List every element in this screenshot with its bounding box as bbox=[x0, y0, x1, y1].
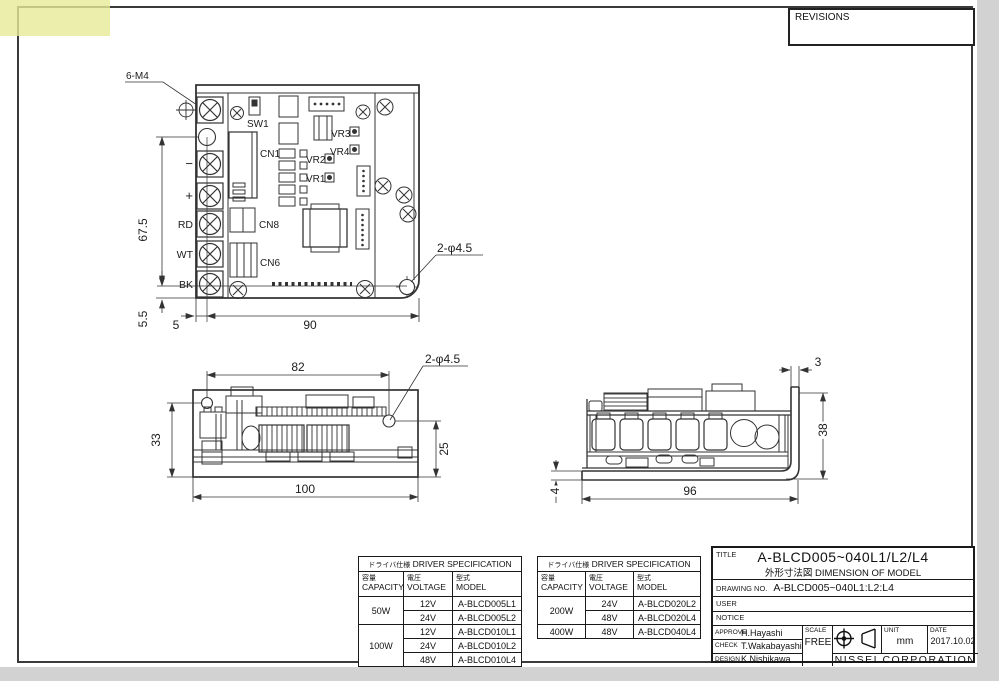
spec-left-header-capacity: 容量CAPACITY bbox=[359, 572, 404, 597]
unit-value: mm bbox=[882, 636, 928, 647]
approve-label: APPROVE bbox=[713, 629, 741, 636]
company-name: NISSEI CORPORATION bbox=[832, 653, 978, 666]
approve-row: APPROVE H.Hayashi bbox=[713, 626, 802, 640]
drawing-no-value: A-BLCD005~040L1:L2:L4 bbox=[773, 582, 894, 594]
check-label: CHECK bbox=[713, 642, 741, 649]
signature-area: APPROVE H.Hayashi CHECK T.Wakabayashi DE… bbox=[713, 625, 973, 665]
unit-label: UNIT bbox=[882, 626, 928, 634]
date-value: 2017.10.02 bbox=[928, 636, 978, 646]
user-row: USER bbox=[713, 596, 973, 611]
cn1-label: CN1 bbox=[260, 149, 280, 160]
scale-label: SCALE bbox=[803, 626, 833, 634]
unit-cell: UNIT mm bbox=[881, 626, 928, 654]
side-view: 3 38 4 96 bbox=[548, 355, 830, 504]
dim-25: 25 bbox=[437, 442, 451, 456]
front-mounting-hole bbox=[383, 415, 395, 427]
dim-96: 96 bbox=[683, 484, 697, 498]
terminal-block bbox=[197, 97, 223, 297]
spec-right-header-model: 型式MODEL bbox=[634, 572, 701, 597]
dim-5: 5 bbox=[173, 318, 180, 332]
approve-name: H.Hayashi bbox=[741, 628, 783, 638]
dim-33: 33 bbox=[149, 433, 163, 447]
datum-target-icon bbox=[176, 100, 196, 120]
cn6-label: CN6 bbox=[260, 258, 280, 269]
dim-38: 38 bbox=[816, 423, 830, 437]
spec-right-header-voltage: 電圧VOLTAGE bbox=[586, 572, 634, 597]
table-row: 400W 48V A-BLCD040L4 bbox=[538, 625, 701, 639]
mounting-hole bbox=[400, 280, 415, 295]
title-description: 外形寸法図 DIMENSION OF MODEL bbox=[713, 565, 973, 579]
driver-spec-table-left: ドライバ仕様 DRIVER SPECIFICATION 容量CAPACITY 電… bbox=[358, 556, 522, 667]
dim-82: 82 bbox=[291, 360, 305, 374]
sw1-label: SW1 bbox=[247, 119, 269, 130]
design-row: DESIGN K.Nishikawa bbox=[713, 653, 802, 666]
terminal-plus-label: + bbox=[185, 188, 193, 203]
dim-5-5: 5.5 bbox=[136, 310, 150, 327]
drawing-no-row: DRAWING NO. A-BLCD005~040L1:L2:L4 bbox=[713, 579, 973, 596]
scale-cell: SCALE FREE bbox=[802, 626, 833, 666]
date-label: DATE bbox=[928, 626, 978, 634]
projection-symbol-cell bbox=[832, 626, 882, 654]
terminal-bk-label: BK bbox=[179, 279, 193, 291]
top-view: 6-M4 SW1 CN1 VR3 VR4 VR2 VR1 CN8 CN6 − +… bbox=[125, 71, 483, 332]
front-view: 82 33 25 100 2-φ4.5 bbox=[149, 352, 468, 502]
dim-90: 90 bbox=[303, 318, 317, 332]
front-hole-callout: 2-φ4.5 bbox=[425, 352, 460, 366]
design-label: DESIGN bbox=[713, 656, 741, 663]
spec-left-title: ドライバ仕様 DRIVER SPECIFICATION bbox=[359, 557, 522, 572]
spec-left-header-voltage: 電圧VOLTAGE bbox=[404, 572, 453, 597]
check-row: CHECK T.Wakabayashi bbox=[713, 639, 802, 653]
cn8-label: CN8 bbox=[259, 220, 279, 231]
yellow-highlight-overlay bbox=[0, 0, 110, 36]
spec-right-header-capacity: 容量CAPACITY bbox=[538, 572, 586, 597]
scale-value: FREE bbox=[803, 637, 833, 648]
drawing-no-label: DRAWING NO. bbox=[716, 584, 767, 593]
vr2-label: VR2 bbox=[306, 155, 326, 166]
title-model: A-BLCD005~040L1/L2/L4 bbox=[713, 549, 973, 565]
dim-100: 100 bbox=[295, 482, 315, 496]
vr1-label: VR1 bbox=[306, 174, 326, 185]
title-row: TITLE A-BLCD005~040L1/L2/L4 外形寸法図 DIMENS… bbox=[713, 548, 973, 579]
side-components bbox=[582, 384, 791, 468]
table-row: 200W 24V A-BLCD020L2 bbox=[538, 597, 701, 611]
check-name: T.Wakabayashi bbox=[741, 641, 802, 651]
table-row: 100W 12V A-BLCD010L1 bbox=[359, 625, 522, 639]
design-name: K.Nishikawa bbox=[741, 654, 791, 664]
date-cell: DATE 2017.10.02 bbox=[927, 626, 978, 654]
dim-67-5: 67.5 bbox=[136, 218, 150, 242]
title-label: TITLE bbox=[716, 550, 736, 559]
terminal-minus-label: − bbox=[185, 156, 193, 171]
vr3-label: VR3 bbox=[331, 129, 351, 140]
first-angle-projection-icon bbox=[833, 626, 880, 651]
terminal-rd-label: RD bbox=[178, 219, 194, 231]
title-block: TITLE A-BLCD005~040L1/L2/L4 外形寸法図 DIMENS… bbox=[711, 546, 975, 663]
spec-right-title: ドライバ仕様 DRIVER SPECIFICATION bbox=[538, 557, 701, 572]
terminal-wt-label: WT bbox=[177, 249, 194, 261]
top-hole-callout: 2-φ4.5 bbox=[437, 241, 472, 255]
dim-4: 4 bbox=[548, 487, 562, 494]
spec-left-header-model: 型式MODEL bbox=[453, 572, 522, 597]
table-row: 50W 12V A-BLCD005L1 bbox=[359, 597, 522, 611]
driver-spec-table-right: ドライバ仕様 DRIVER SPECIFICATION 容量CAPACITY 電… bbox=[537, 556, 701, 639]
dim-3: 3 bbox=[815, 355, 822, 369]
vr4-label: VR4 bbox=[330, 147, 350, 158]
thread-callout-label: 6-M4 bbox=[126, 71, 149, 82]
notice-row: NOTICE bbox=[713, 611, 973, 625]
